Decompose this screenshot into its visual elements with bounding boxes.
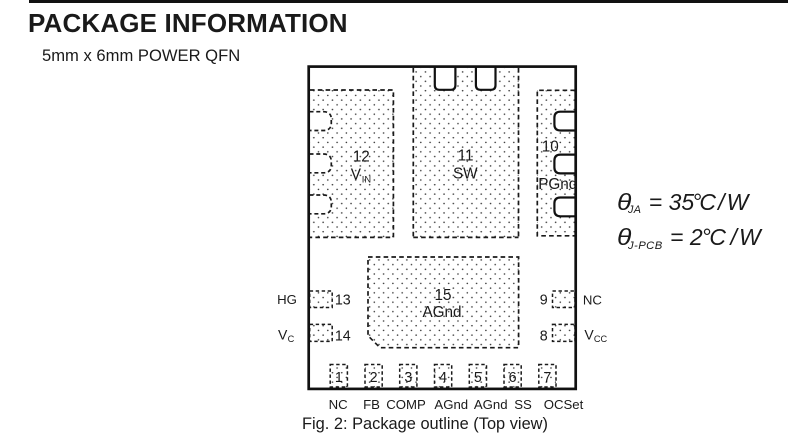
svg-text:14: 14 <box>335 329 351 345</box>
svg-text:6: 6 <box>509 370 517 386</box>
svg-text:8: 8 <box>540 329 548 345</box>
svg-text:PGnd: PGnd <box>538 176 577 193</box>
svg-text:2: 2 <box>370 370 378 386</box>
svg-text:12: 12 <box>353 149 370 166</box>
svg-text:HG: HG <box>277 292 297 307</box>
svg-text:4: 4 <box>439 370 447 386</box>
svg-text:15: 15 <box>434 287 451 304</box>
svg-text:NC: NC <box>583 292 603 307</box>
svg-text:11: 11 <box>458 148 474 165</box>
svg-text:9: 9 <box>540 293 548 309</box>
svg-text:V: V <box>584 326 594 342</box>
svg-text:13: 13 <box>335 293 351 309</box>
svg-text:V: V <box>278 326 288 342</box>
svg-text:COMP: COMP <box>386 397 426 412</box>
svg-text:NC: NC <box>329 397 349 412</box>
svg-text:AGnd: AGnd <box>474 397 508 412</box>
svg-text:1: 1 <box>335 370 343 386</box>
svg-text:SS: SS <box>514 397 532 412</box>
svg-text:V: V <box>351 167 362 184</box>
svg-text:10: 10 <box>542 139 559 156</box>
svg-text:AGnd: AGnd <box>422 304 461 321</box>
svg-text:3: 3 <box>404 370 412 386</box>
svg-text:SW: SW <box>453 166 478 183</box>
svg-text:CC: CC <box>594 334 608 344</box>
svg-text:C: C <box>288 334 295 344</box>
svg-text:7: 7 <box>543 370 551 386</box>
svg-text:OCSet: OCSet <box>544 397 584 412</box>
svg-text:AGnd: AGnd <box>434 397 468 412</box>
svg-text:FB: FB <box>363 397 380 412</box>
svg-text:5: 5 <box>474 370 482 386</box>
svg-text:IN: IN <box>362 175 371 185</box>
